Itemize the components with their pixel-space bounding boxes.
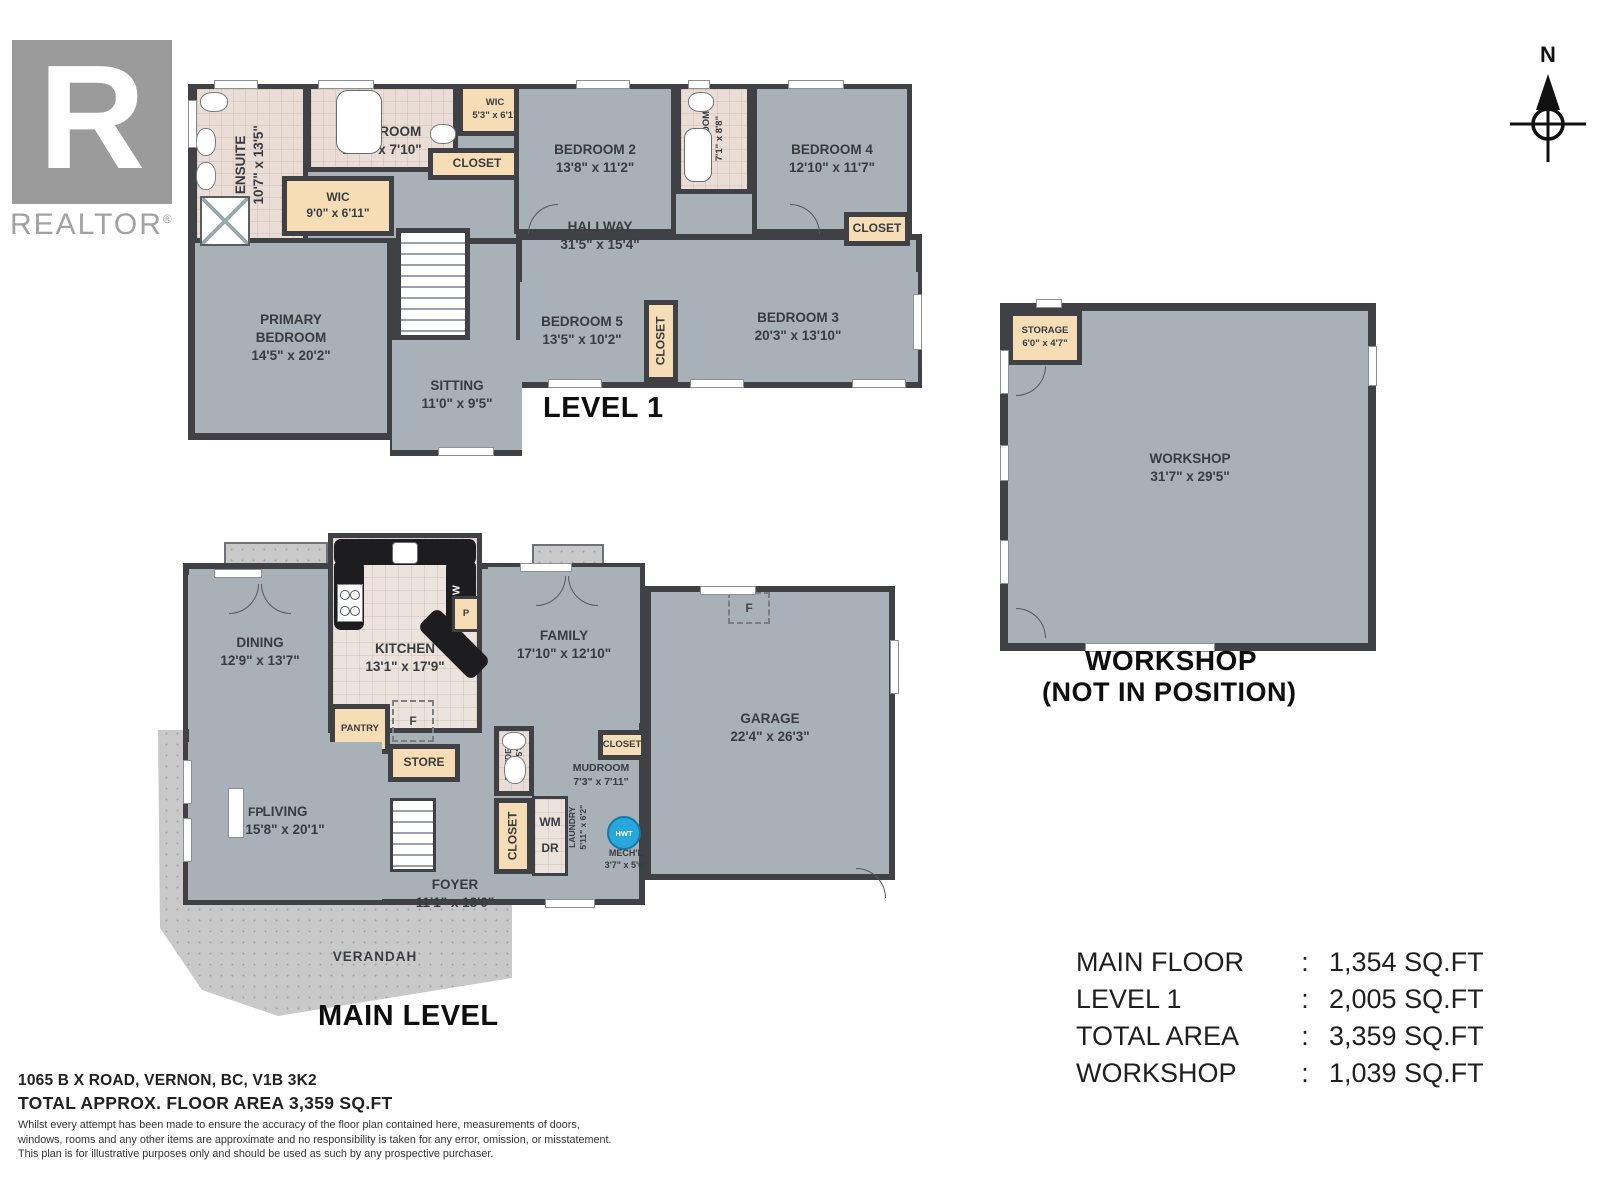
summary-row-level1: LEVEL 1 : 2,005 SQ.FT [1076,981,1484,1018]
room-bedroom5-label: BEDROOM 5 13'5" x 10'2" [541,313,623,349]
room-closet-top: CLOSET [428,148,526,180]
room-closet-right-label: CLOSET [853,221,902,237]
window [852,379,906,388]
room-ensuite-label: ENSUITE 10'7" x 13'5" [232,125,268,204]
door-opening [1368,346,1377,386]
window [183,760,192,804]
window [188,100,197,148]
window [438,447,494,456]
fireplace-box [228,788,244,838]
level1-stairs [396,228,470,340]
compass-graphic [1498,68,1598,164]
window [688,80,710,89]
bathtub-icon [336,90,382,154]
workshop-caption-line2: (NOT IN POSITION) [1042,677,1297,708]
room-closet-mid-label: CLOSET [653,317,669,366]
room-bedroom4-label: BEDROOM 4 12'10" x 11'7" [789,141,875,177]
window [1036,299,1062,308]
stove-icon [337,584,363,622]
room-foyer-label: FOYER 11'1" x 18'0" [400,876,510,912]
sink-icon [196,128,216,156]
furnace-box: F [728,592,770,624]
compass-north-label: N [1498,42,1598,68]
room-hallway-label: HALLWAY 31'5" x 15'4" [540,218,660,254]
area-summary-table: MAIN FLOOR : 1,354 SQ.FT LEVEL 1 : 2,005… [1076,944,1484,1092]
room-family-label: FAMILY 17'10" x 12'10" [517,627,611,663]
window [1000,540,1009,584]
property-address: 1065 B X ROAD, VERNON, BC, V1B 3K2 [18,1072,612,1090]
window [183,818,192,862]
main-stairs [390,798,436,872]
washer-dryer-labels: WM DR [539,815,560,857]
room-garage-label: GARAGE 22'4" x 26'3" [700,710,840,746]
window [214,80,258,89]
fridge-box: F [392,700,434,742]
hot-water-tank-icon: HWT [607,816,641,850]
room-closet-top-label: CLOSET [453,156,502,172]
summary-row-main-floor: MAIN FLOOR : 1,354 SQ.FT [1076,944,1484,981]
room-bedroom3-label: BEDROOM 3 20'3" x 13'10" [755,309,842,345]
room-workshop-label: WORKSHOP 31'7" x 29'5" [1110,450,1270,486]
washer-dryer-area: WM DR [532,796,568,876]
room-sitting: SITTING 11'0" x 9'5" [392,340,522,450]
room-storage-label: STORAGE 6'0" x 4'7" [1022,325,1069,350]
room-bedroom5: BEDROOM 5 13'5" x 10'2" [520,282,644,380]
window [1000,350,1009,394]
summary-row-total-area: TOTAL AREA : 3,359 SQ.FT [1076,1018,1484,1055]
room-dining: DINING 12'9" x 13'7" [188,575,332,729]
sink-icon [502,732,526,750]
room-laundry-closet-label: CLOSET [505,812,521,861]
total-area-line: TOTAL APPROX. FLOOR AREA 3,359 SQ.FT [18,1093,612,1114]
verandah-label: VERANDAH [320,948,430,966]
room-wic-label: WIC 9'0" x 6'11" [306,190,369,222]
room-store: STORE [388,744,460,782]
room-dining-label: DINING 12'9" x 13'7" [220,634,299,670]
room-pantry-corner: P [452,596,480,632]
realtor-logo-letter: R [39,44,146,192]
room-mud-closet: CLOSET [598,730,646,760]
room-primary-bedroom-label: PRIMARY BEDROOM 14'5" x 20'2" [236,311,346,364]
room-store-label: STORE [403,755,444,771]
room-bedroom2-label: BEDROOM 2 13'8" x 11'2" [554,141,636,177]
window [913,294,922,350]
footer-text-block: 1065 B X ROAD, VERNON, BC, V1B 3K2 TOTAL… [18,1072,612,1162]
room-mech-label: MECH'L 3'7" x 5'0" [596,848,656,872]
toilet-icon [200,92,228,112]
summary-row-workshop: WORKSHOP : 1,039 SQ.FT [1076,1055,1484,1092]
toilet-icon [430,124,456,144]
room-mudroom-label: MUDROOM 7'3" x 7'11" [548,762,654,790]
registered-symbol: ® [163,212,174,226]
window [548,379,602,388]
room-sitting-label: SITTING 11'0" x 9'5" [421,377,492,413]
toilet-icon [504,756,526,784]
window [520,563,572,572]
toilet-icon [688,92,714,112]
room-living: LIVING 15'8" x 20'1" [188,742,382,900]
window [545,899,595,908]
window [890,640,899,694]
garage-opening [700,586,756,595]
floorplan-canvas: R REALTOR® N ENSUITE 10'7" x 13'5" BATHR… [0,0,1600,1200]
pantry-corner-label: P [463,608,469,621]
room-kitchen-label: KITCHEN 13'1" x 17'9" [365,640,444,676]
bathtub-icon [684,128,712,182]
room-mud-closet-label: CLOSET [603,739,642,752]
workshop-caption-line1: WORKSHOP [1085,645,1257,677]
room-closet-right: CLOSET [844,212,910,246]
room-laundry-label: LAUNDRY 5'11" x 6'2" [567,805,589,850]
room-wic: WIC 9'0" x 6'11" [282,176,394,236]
disclaimer-text: Whilst every attempt has been made to en… [18,1118,612,1162]
room-bedroom3: BEDROOM 3 20'3" x 13'10" [678,272,918,382]
realtor-wordmark: REALTOR® [10,208,174,242]
room-wic-small-label: WIC 5'3" x 6'1" [472,97,517,122]
window [318,80,374,89]
window [576,80,630,89]
level1-title: LEVEL 1 [543,392,664,425]
compass-rose-icon: N [1498,42,1598,162]
main-level-title: MAIN LEVEL [318,1000,499,1033]
room-closet-mid: CLOSET [644,300,678,382]
room-family: FAMILY 17'10" x 12'10" [488,567,640,723]
fireplace-label: FP [248,805,263,821]
room-pantry-label: PANTRY [341,723,379,736]
room-laundry-closet: CLOSET [494,798,532,874]
room-storage: STORAGE 6'0" x 4'7" [1008,311,1082,365]
window [214,569,262,578]
window [1000,445,1009,481]
window [690,379,744,388]
window [788,80,844,89]
sink-icon [196,162,216,190]
kitchen-sink-icon [392,542,418,564]
shower-icon [200,196,250,246]
realtor-logo-icon: R [12,40,172,204]
room-primary-bedroom: PRIMARY BEDROOM 14'5" x 20'2" [190,238,392,438]
realtor-brand-text: REALTOR [10,208,163,241]
